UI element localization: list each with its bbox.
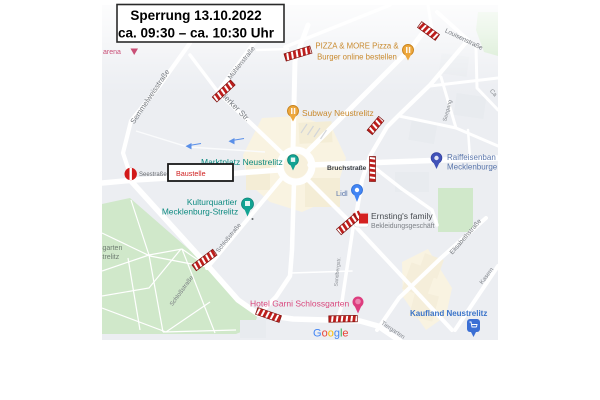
- svg-text:Bruchstraße: Bruchstraße: [327, 165, 367, 172]
- svg-text:Google: Google: [313, 328, 349, 340]
- svg-text:PIZZA & MORE Pizza &: PIZZA & MORE Pizza &: [315, 42, 399, 51]
- svg-text:Kaufland Neustrelitz: Kaufland Neustrelitz: [410, 309, 487, 318]
- svg-text:Mecklenburg-Strelitz: Mecklenburg-Strelitz: [162, 207, 238, 217]
- svg-text:Sperrung 13.10.2022: Sperrung 13.10.2022: [130, 8, 261, 23]
- svg-text:Kulturquartier: Kulturquartier: [187, 197, 237, 207]
- svg-text:Mecklenburge: Mecklenburge: [447, 163, 498, 172]
- svg-text:Raiffeisenban: Raiffeisenban: [447, 153, 496, 162]
- svg-text:ca. 09:30 – ca. 10:30 Uhr: ca. 09:30 – ca. 10:30 Uhr: [118, 26, 275, 41]
- svg-text:Seestraße: Seestraße: [139, 172, 167, 178]
- svg-text:strelitz: strelitz: [99, 254, 120, 261]
- svg-text:Ernsting's family: Ernsting's family: [371, 211, 433, 221]
- svg-text:Lidl: Lidl: [336, 189, 348, 198]
- svg-text:Hotel Garni Schlossgarten: Hotel Garni Schlossgarten: [250, 299, 349, 309]
- svg-text:Baustelle: Baustelle: [176, 169, 206, 178]
- svg-text:Subway Neustrelitz: Subway Neustrelitz: [302, 108, 374, 118]
- svg-text:arena: arena: [103, 49, 121, 56]
- svg-text:Bekleidungsgeschäft: Bekleidungsgeschäft: [371, 223, 435, 230]
- svg-text:sgarten: sgarten: [99, 245, 122, 252]
- svg-text:Burger online bestellen: Burger online bestellen: [317, 53, 397, 62]
